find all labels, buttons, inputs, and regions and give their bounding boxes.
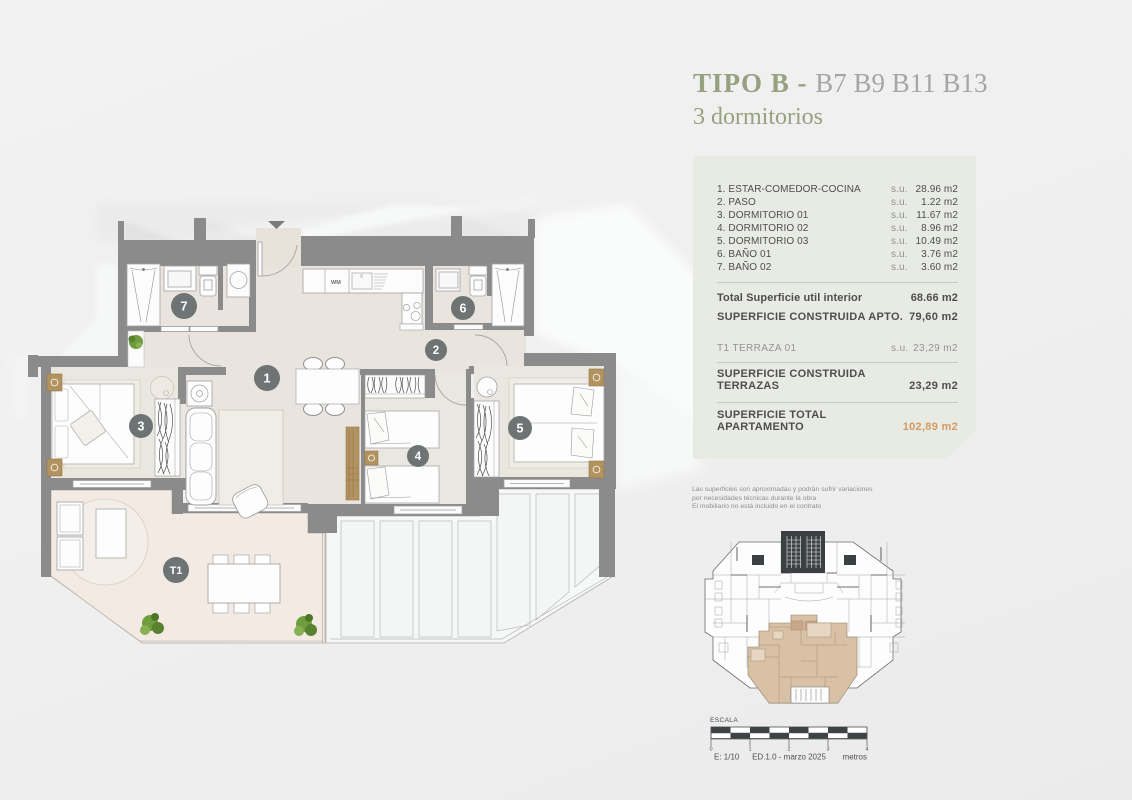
- svg-text:1: 1: [748, 747, 751, 753]
- svg-text:0: 0: [709, 747, 712, 753]
- svg-text:ESCALA: ESCALA: [710, 717, 738, 724]
- svg-text:4: 4: [415, 451, 422, 463]
- svg-text:metros: metros: [843, 753, 867, 762]
- svg-text:5: 5: [517, 422, 524, 436]
- svg-text:ED.1.0 - marzo 2025: ED.1.0 - marzo 2025: [752, 753, 826, 762]
- svg-text:E: 1/10: E: 1/10: [714, 753, 740, 762]
- svg-text:1: 1: [263, 371, 270, 386]
- svg-text:T1: T1: [170, 565, 183, 577]
- svg-text:WM: WM: [331, 280, 341, 286]
- svg-text:6: 6: [460, 302, 467, 316]
- svg-text:7: 7: [180, 299, 187, 314]
- svg-text:3: 3: [826, 747, 829, 753]
- svg-text:2: 2: [433, 345, 439, 357]
- svg-text:3: 3: [138, 420, 145, 434]
